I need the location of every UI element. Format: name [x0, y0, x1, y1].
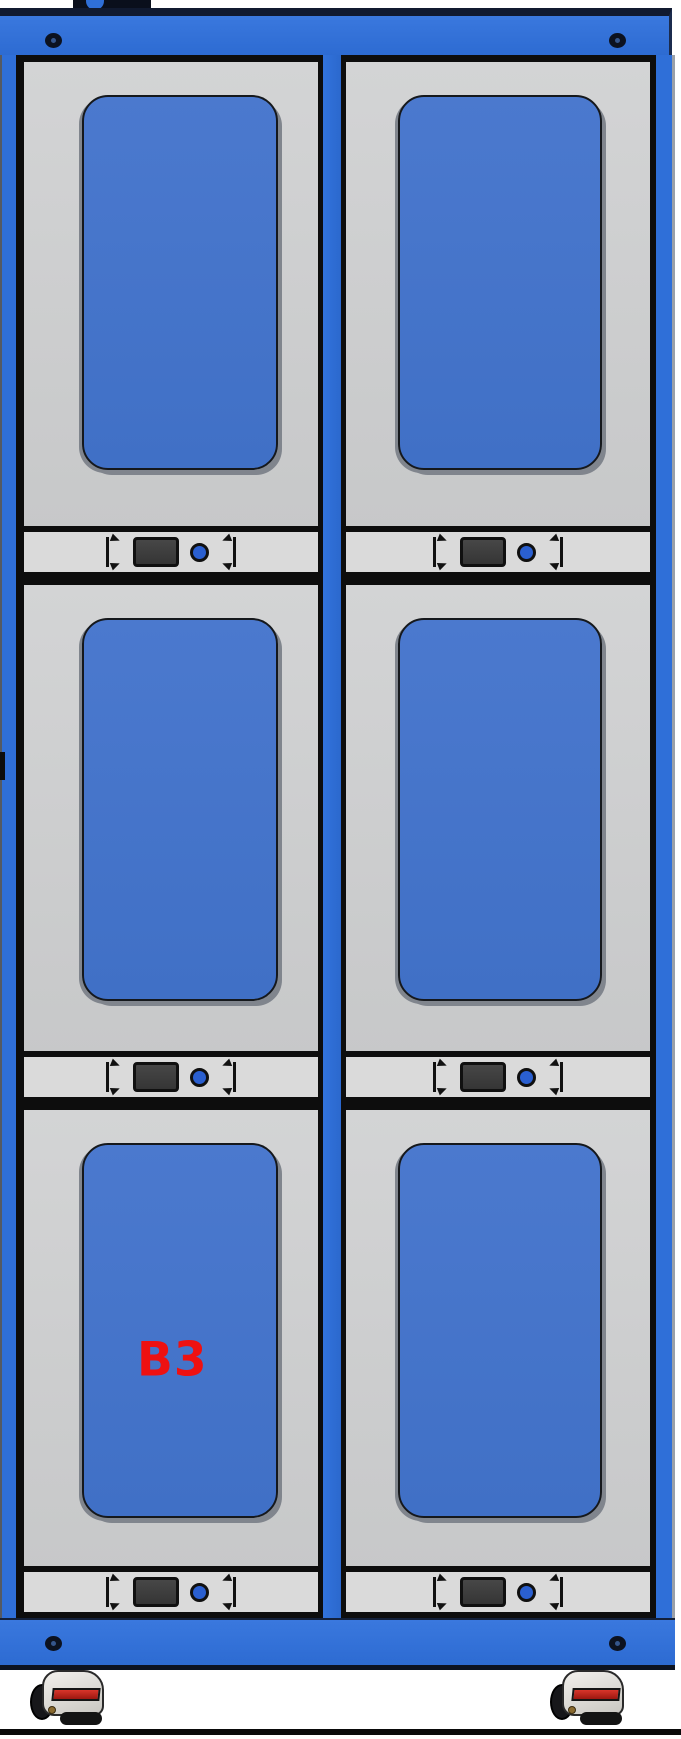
- lcd-display: [460, 537, 506, 567]
- compartment-label-b3: B3: [137, 1333, 208, 1388]
- lcd-display: [133, 1577, 179, 1607]
- lcd-display: [133, 1062, 179, 1092]
- ground-line: [0, 1729, 681, 1735]
- control-strip: [346, 1566, 650, 1612]
- compartment-door-r1c1[interactable]: [24, 55, 318, 578]
- corner-bracket-icon: [433, 1062, 449, 1092]
- control-strip: [346, 526, 650, 572]
- lcd-display: [460, 1062, 506, 1092]
- control-strip: [24, 526, 318, 572]
- door-window-panel: [398, 1143, 602, 1518]
- compartment-door-r3c1-B3[interactable]: B3: [24, 1103, 318, 1618]
- door-window-panel: [398, 95, 602, 470]
- caster-adjuster: [571, 1688, 620, 1701]
- screw-hole-icon: [609, 33, 626, 48]
- corner-bracket-icon: [220, 1577, 236, 1607]
- corner-bracket-icon: [547, 1062, 563, 1092]
- caster-wheel-icon: [548, 1668, 634, 1726]
- compartment-door-r3c2[interactable]: [346, 1103, 650, 1618]
- lcd-display: [460, 1577, 506, 1607]
- corner-bracket-icon: [106, 537, 122, 567]
- compartment-door-r2c1[interactable]: [24, 578, 318, 1103]
- door-window-panel: [398, 618, 602, 1001]
- screw-hole-icon: [45, 1636, 62, 1651]
- center-frame-rail: [318, 55, 346, 1618]
- right-frame-rail: [650, 55, 675, 1618]
- door-window-panel: [82, 95, 278, 470]
- caster-bolt-icon: [48, 1706, 56, 1714]
- control-strip: [24, 1566, 318, 1612]
- led-indicator-icon: [517, 543, 536, 562]
- corner-bracket-icon: [433, 537, 449, 567]
- led-indicator-icon: [517, 1583, 536, 1602]
- corner-bracket-icon: [106, 1062, 122, 1092]
- compartment-door-r2c2[interactable]: [346, 578, 650, 1103]
- caster-bolt-icon: [568, 1706, 576, 1714]
- caster-foot: [60, 1712, 102, 1725]
- corner-bracket-icon: [220, 1062, 236, 1092]
- corner-bracket-icon: [547, 1577, 563, 1607]
- door-window-panel: [82, 618, 278, 1001]
- caster-adjuster: [51, 1688, 100, 1701]
- screw-hole-icon: [45, 33, 62, 48]
- corner-bracket-icon: [547, 537, 563, 567]
- led-indicator-icon: [190, 1583, 209, 1602]
- control-strip: [24, 1051, 318, 1097]
- corner-bracket-icon: [106, 1577, 122, 1607]
- left-rail-notch: [0, 752, 5, 780]
- corner-bracket-icon: [433, 1577, 449, 1607]
- screw-hole-icon: [609, 1636, 626, 1651]
- caster-foot: [580, 1712, 622, 1725]
- lcd-display: [133, 537, 179, 567]
- compartment-door-r1c2[interactable]: [346, 55, 650, 578]
- bottom-frame-bar: [0, 1618, 675, 1670]
- caster-wheel-icon: [28, 1668, 114, 1726]
- top-frame-bar: [0, 8, 672, 55]
- led-indicator-icon: [517, 1068, 536, 1087]
- led-indicator-icon: [190, 543, 209, 562]
- cabinet-render: B3: [0, 0, 681, 1739]
- control-strip: [346, 1051, 650, 1097]
- door-window-panel: B3: [82, 1143, 278, 1518]
- led-indicator-icon: [190, 1068, 209, 1087]
- left-frame-rail: [0, 55, 24, 1618]
- corner-bracket-icon: [220, 537, 236, 567]
